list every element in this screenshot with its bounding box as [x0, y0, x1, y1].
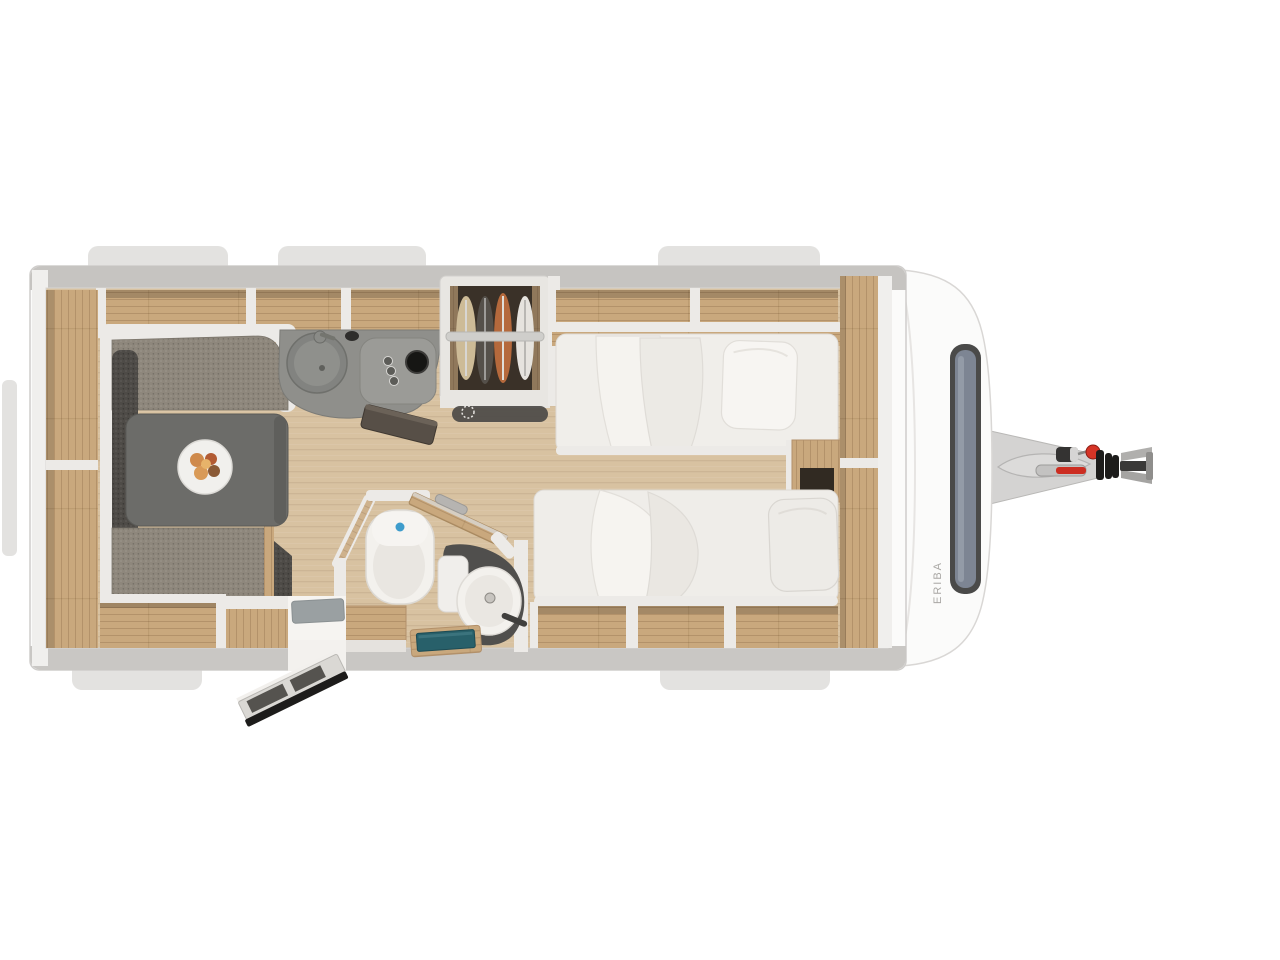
- toilet: [366, 510, 434, 604]
- drain-hole: [345, 331, 359, 341]
- single-bed-top: [556, 334, 838, 455]
- dinette-table: [126, 414, 288, 526]
- storage-box: [338, 606, 406, 652]
- entry-cabinet: [226, 596, 288, 648]
- hitch-coupling: [1096, 447, 1153, 484]
- hob-knob: [390, 377, 399, 386]
- hob-knob: [387, 367, 396, 376]
- flush-button: [396, 523, 405, 532]
- side-lockers: [46, 290, 98, 648]
- duvet: [640, 338, 703, 450]
- gas-hob: [360, 338, 436, 404]
- hob-knob: [384, 357, 393, 366]
- side-flue-icon: [2, 380, 17, 556]
- handbrake-lever: [1036, 465, 1086, 476]
- dinette-bench-top: [112, 336, 288, 410]
- under-seat-storage: [100, 594, 226, 648]
- bench-end-board: [264, 526, 274, 608]
- wardrobe-kick: [452, 406, 548, 422]
- front-window: [950, 344, 981, 594]
- single-bed-bottom: [534, 490, 839, 606]
- floorplan-image: ERIBA: [0, 0, 1280, 960]
- burner: [406, 351, 428, 373]
- door-mat: [291, 599, 344, 624]
- dinette: [100, 324, 296, 648]
- drain-icon: [485, 593, 495, 603]
- front-sideboard: [840, 276, 892, 648]
- shower-tray: [410, 625, 482, 657]
- clothes-rail: [446, 332, 544, 341]
- plate-with-food: [178, 440, 232, 494]
- brand-label: ERIBA: [932, 561, 944, 604]
- drawbar: [986, 430, 1153, 505]
- wardrobe: [440, 276, 560, 422]
- pillow: [721, 340, 798, 431]
- under-bed-storage: [530, 602, 838, 648]
- caravan-floorplan-svg: ERIBA: [0, 0, 1280, 960]
- pillow: [768, 498, 839, 592]
